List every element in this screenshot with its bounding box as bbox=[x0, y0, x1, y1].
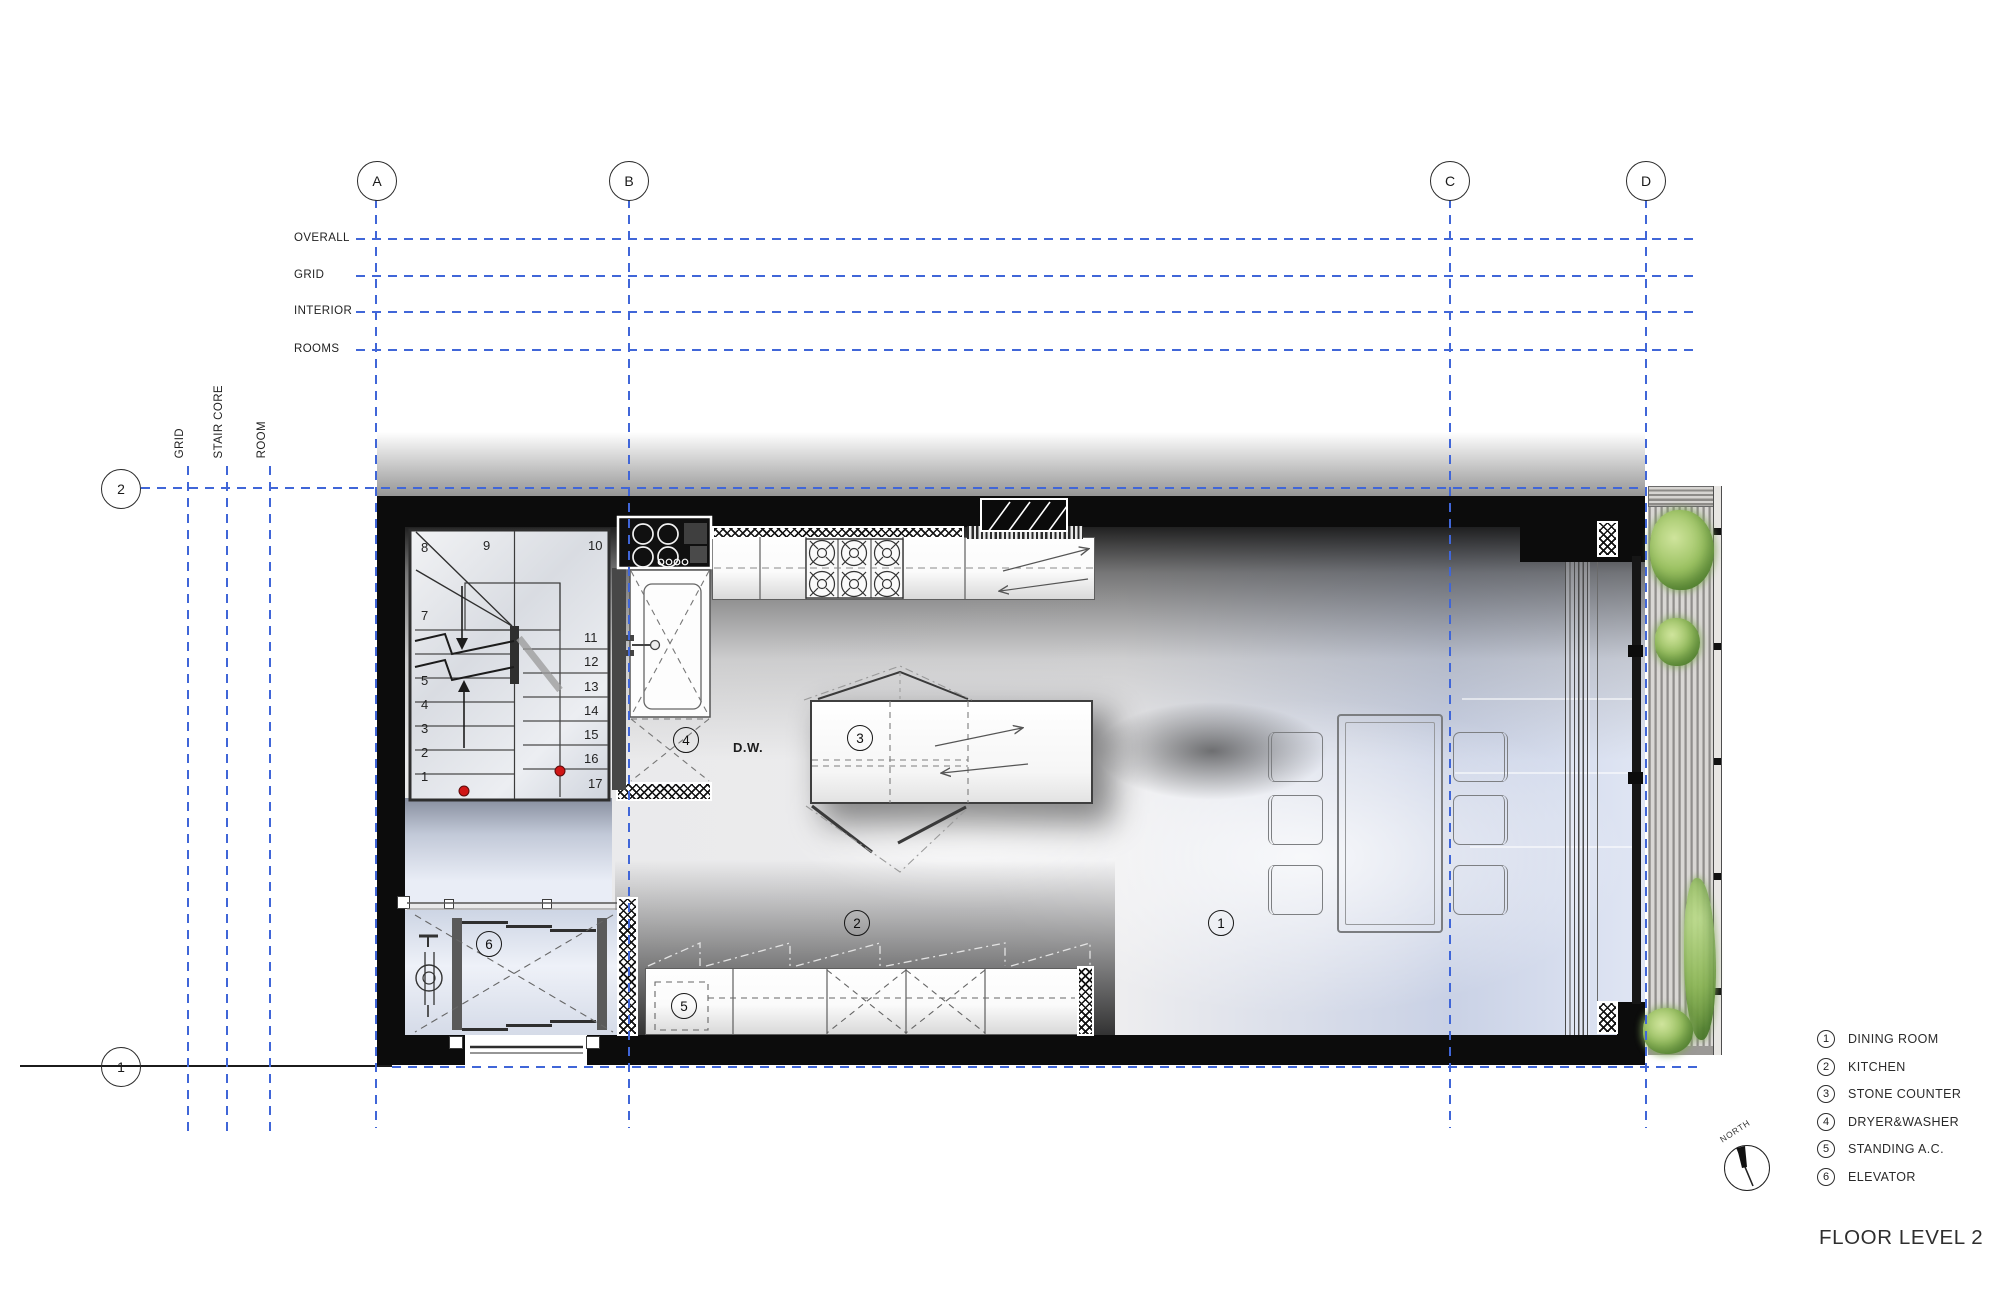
guide-line-interior bbox=[356, 311, 1700, 313]
stair-hall-floor bbox=[405, 798, 612, 902]
stair-tread-number: 7 bbox=[421, 608, 428, 623]
sheet-title: FLOOR LEVEL 2 bbox=[1819, 1226, 1983, 1250]
laundry-wall-hatch bbox=[616, 782, 712, 801]
legend-item-dining-room: 1 DINING ROOM bbox=[1817, 1030, 1961, 1048]
callout-elevator: 6 bbox=[476, 931, 502, 957]
stair-tread-number: 1 bbox=[421, 769, 428, 784]
counter-end-hatch bbox=[1077, 966, 1094, 1036]
dining-table-top bbox=[1345, 722, 1435, 925]
south-counter bbox=[645, 968, 1078, 1035]
glass-wall-line bbox=[1597, 558, 1598, 1003]
legend-item-stone-counter: 3 STONE COUNTER bbox=[1817, 1085, 1961, 1103]
stair-tread-number: 8 bbox=[421, 540, 428, 555]
stair-tread-number: 10 bbox=[588, 538, 602, 553]
left-guide-grid bbox=[187, 466, 189, 1132]
left-guide-label-grid: GRID bbox=[174, 428, 186, 458]
stair-tread-number: 14 bbox=[584, 703, 598, 718]
left-guide-room bbox=[269, 466, 271, 1132]
stair-core-floor bbox=[410, 530, 609, 800]
callout-dryer-washer: 4 bbox=[673, 727, 699, 753]
shaft-hatch-se bbox=[1597, 1001, 1618, 1034]
grid-bubble-B: B bbox=[609, 161, 649, 201]
legend-item-standing-ac: 5 STANDING A.C. bbox=[1817, 1140, 1961, 1158]
left-guide-stair-core bbox=[226, 466, 228, 1132]
stair-tread-number: 15 bbox=[584, 727, 598, 742]
track-joint bbox=[1628, 772, 1643, 784]
partition-post bbox=[542, 899, 552, 909]
laundry-room-floor bbox=[611, 530, 712, 800]
grid-line-A bbox=[375, 199, 377, 1128]
dining-chair bbox=[1453, 865, 1508, 915]
glass-reflection-line bbox=[1470, 846, 1637, 848]
legend-item-elevator: 6 ELEVATOR bbox=[1817, 1168, 1961, 1186]
range-hood bbox=[980, 498, 1068, 532]
rail-post bbox=[1714, 758, 1721, 765]
legend-item-dryer-washer: 4 DRYER&WASHER bbox=[1817, 1113, 1961, 1131]
rail-post bbox=[1714, 873, 1721, 880]
guide-label-overall: OVERALL bbox=[294, 232, 350, 244]
grid-line-D bbox=[1645, 199, 1647, 1128]
kitchen-wall-hatch bbox=[712, 526, 964, 539]
row-bubble-2: 2 bbox=[101, 469, 141, 509]
callout-standing-ac: 5 bbox=[671, 993, 697, 1019]
terrace-top-rail bbox=[1648, 486, 1722, 507]
guide-line-rooms bbox=[356, 349, 1700, 351]
dining-chair bbox=[1453, 795, 1508, 845]
grid-bubble-C: C bbox=[1430, 161, 1470, 201]
glass-reflection-line bbox=[1462, 698, 1637, 700]
dining-chair bbox=[1268, 732, 1323, 782]
partition-post bbox=[444, 899, 454, 909]
stair-tread-number: 4 bbox=[421, 697, 428, 712]
stair-tread-number: 12 bbox=[584, 654, 598, 669]
stone-counter-island bbox=[810, 700, 1093, 804]
legend-label: STONE COUNTER bbox=[1848, 1087, 1961, 1101]
stair-tread-number: 3 bbox=[421, 721, 428, 736]
legend-number: 2 bbox=[1817, 1058, 1835, 1076]
guide-line-grid bbox=[356, 275, 1700, 277]
stair-tread-number: 17 bbox=[588, 776, 602, 791]
legend-number: 3 bbox=[1817, 1085, 1835, 1103]
row-line-2 bbox=[141, 487, 1643, 489]
guide-label-grid: GRID bbox=[294, 269, 324, 281]
door-jamb bbox=[586, 1036, 600, 1049]
legend-item-kitchen: 2 KITCHEN bbox=[1817, 1058, 1961, 1076]
rail-post bbox=[1714, 643, 1721, 650]
kitchen-counter bbox=[712, 537, 1095, 600]
grid-bubble-D: D bbox=[1626, 161, 1666, 201]
legend-number: 5 bbox=[1817, 1140, 1835, 1158]
grid-bubble-A: A bbox=[357, 161, 397, 201]
callout-dining-room: 1 bbox=[1208, 910, 1234, 936]
grid-line-B bbox=[628, 199, 630, 1128]
plant-bush bbox=[1643, 1008, 1693, 1054]
row-line-1 bbox=[392, 1066, 1700, 1068]
elevator-floor bbox=[405, 910, 617, 1035]
legend-label: DINING ROOM bbox=[1848, 1032, 1939, 1046]
wall-southeast-return bbox=[1617, 1002, 1645, 1037]
plant-bush bbox=[1650, 510, 1714, 590]
callout-kitchen: 2 bbox=[844, 910, 870, 936]
stair-tread-number: 5 bbox=[421, 673, 428, 688]
shaft-hatch-ne bbox=[1597, 521, 1618, 557]
stair-tread-number: 13 bbox=[584, 679, 598, 694]
dining-chair bbox=[1268, 865, 1323, 915]
stair-tread-number: 2 bbox=[421, 745, 428, 760]
plant-bush bbox=[1655, 618, 1700, 666]
partition-post bbox=[397, 896, 410, 909]
dishwasher-label: D.W. bbox=[733, 740, 763, 755]
guide-line-overall bbox=[356, 238, 1700, 240]
callout-stone-counter: 3 bbox=[847, 725, 873, 751]
left-guide-label-room: ROOM bbox=[256, 421, 268, 458]
door-jamb bbox=[449, 1036, 463, 1049]
dining-chair bbox=[1453, 732, 1508, 782]
legend: 1 DINING ROOM 2 KITCHEN 3 STONE COUNTER … bbox=[1817, 1030, 1961, 1186]
track-joint bbox=[1628, 645, 1643, 657]
legend-number: 6 bbox=[1817, 1168, 1835, 1186]
rail-post bbox=[1714, 528, 1721, 535]
elevator-door-opening bbox=[465, 1035, 587, 1065]
legend-number: 4 bbox=[1817, 1113, 1835, 1131]
row-bubble-1: 1 bbox=[101, 1047, 141, 1087]
legend-label: ELEVATOR bbox=[1848, 1170, 1916, 1184]
legend-label: DRYER&WASHER bbox=[1848, 1115, 1959, 1129]
north-arrow: NORTH bbox=[1710, 1124, 1800, 1214]
row-line-1-solid bbox=[20, 1065, 392, 1067]
grid-line-C bbox=[1449, 199, 1451, 1128]
stair-tread-number: 11 bbox=[584, 630, 598, 645]
legend-label: STANDING A.C. bbox=[1848, 1142, 1944, 1156]
left-guide-label-stair-core: STAIR CORE bbox=[213, 385, 225, 458]
dining-chair bbox=[1268, 795, 1323, 845]
guide-label-rooms: ROOMS bbox=[294, 343, 339, 355]
legend-number: 1 bbox=[1817, 1030, 1835, 1048]
stair-tread-number: 9 bbox=[483, 538, 490, 553]
floor-plan-sheet: 8 9 10 7 5 4 3 2 1 11 12 13 14 15 16 17 … bbox=[0, 0, 2000, 1308]
dining-table bbox=[1337, 714, 1443, 933]
glass-wall-mullions bbox=[1565, 533, 1590, 1035]
legend-label: KITCHEN bbox=[1848, 1060, 1906, 1074]
north-needle bbox=[1710, 1124, 1800, 1214]
wall-west bbox=[377, 496, 405, 1065]
stair-tread-number: 16 bbox=[584, 751, 598, 766]
wall-northeast-return bbox=[1520, 527, 1645, 562]
guide-label-interior: INTERIOR bbox=[294, 305, 352, 317]
